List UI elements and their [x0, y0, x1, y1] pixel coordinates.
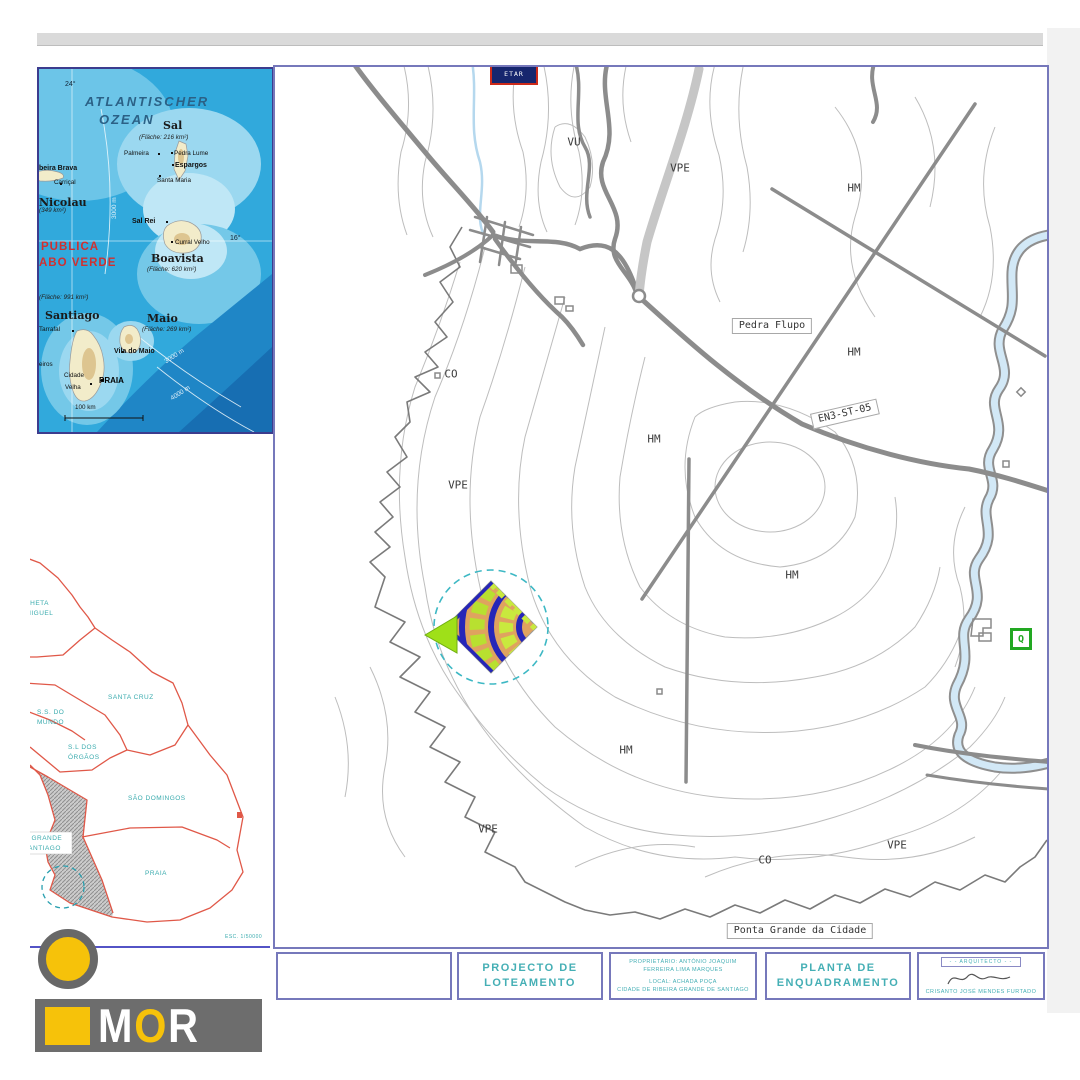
cv-label: Sal — [163, 120, 182, 131]
cv-label: ATLANTISCHER — [85, 95, 209, 108]
cv-label: Santa Maria — [157, 178, 191, 184]
cv-label: Tarrafal — [39, 327, 60, 333]
mun-label: CALHETA — [30, 601, 49, 608]
logo-letter: O — [134, 999, 168, 1052]
title-cell-empty — [276, 952, 452, 1000]
zone-label: HM — [847, 183, 860, 194]
cv-label: (Fläche: 216 km²) — [139, 135, 188, 141]
cv-label: (349 km²) — [39, 208, 66, 214]
mun-label: MUNDO — [37, 720, 64, 727]
logo-square-icon — [45, 1007, 90, 1045]
title-cell-project: PROJECTO DE LOTEAMENTO — [457, 952, 603, 1000]
cv-label: Vila do Maio — [114, 348, 155, 355]
mun-label: S.S. DO — [37, 710, 64, 717]
title-cell-drawing: PLANTA DE ENQUADRAMENTO — [765, 952, 911, 1000]
mun-label: DE SANTIAGO — [30, 846, 61, 853]
architect-name: CRISANTO JOSÉ MENDES FURTADO — [926, 989, 1037, 995]
cv-label: Boavista — [151, 253, 204, 264]
owner-line1: PROPRIETÁRIO: ANTÓNIO JOAQUIM — [617, 958, 749, 966]
logo-circle-icon — [38, 929, 98, 989]
zone-label: CO — [444, 369, 457, 380]
drawing-title-line2: ENQUADRAMENTO — [777, 976, 900, 991]
municipality-labels: CALHETAS. MIGUELSANTA CRUZS.S. DOMUNDOS.… — [30, 535, 270, 945]
mun-label: S. MIGUEL — [30, 611, 53, 618]
cv-label: 100 km — [75, 405, 96, 411]
cv-label: PUBLICA — [41, 242, 99, 254]
local-line2: CIDADE DE RIBEIRA GRANDE DE SANTIAGO — [617, 986, 749, 994]
zone-label: Pedra Flupo — [732, 318, 812, 334]
cv-label: 3000 m — [112, 197, 119, 219]
zone-label: VPE — [670, 163, 690, 174]
mun-label: PRAIA — [145, 871, 167, 878]
main-map-planta-enquadramento: ETAR Q VUVPEHMHMCOVPEHMHMHMVPECOVPEPedra… — [273, 65, 1049, 949]
mun-label: ÓRGÃOS — [68, 755, 100, 762]
cv-label: Pedra Lume — [174, 151, 208, 157]
inset-map-cabo-verde: 24°ATLANTISCHEROZEANSal(Fläche: 216 km²)… — [37, 67, 274, 434]
zone-label: HM — [619, 745, 632, 756]
zone-labels-layer: VUVPEHMHMCOVPEHMHMHMVPECOVPEPedra FlupoE… — [275, 67, 1047, 947]
signature — [944, 968, 1019, 988]
cv-label: beira Brava — [39, 165, 77, 172]
cv-label: Cidade — [64, 373, 84, 379]
cv-label: 3000 m — [164, 348, 186, 365]
logo-letter: M — [98, 999, 134, 1052]
cv-label: 24° — [65, 81, 76, 88]
project-title-line2: LOTEAMENTO — [482, 976, 577, 991]
inset-map-municipalities: CALHETAS. MIGUELSANTA CRUZS.S. DOMUNDOS.… — [30, 535, 270, 945]
right-margin-strip — [1047, 28, 1080, 1013]
zone-label: HM — [847, 347, 860, 358]
cv-label: (Fläche: 991 km²) — [39, 295, 88, 301]
mun-label: ESC. 1/50000 — [225, 935, 262, 940]
owner-line2: FERREIRA LIMA MARQUES — [617, 966, 749, 974]
cv-label: Maio — [147, 313, 178, 324]
zone-label: EN3-ST-05 — [810, 399, 880, 430]
cv-label: Carriçal — [54, 180, 76, 186]
cv-label: ABO VERDE — [39, 258, 116, 270]
logo-wordmark: MOR — [98, 1000, 200, 1051]
logo-letter: R — [168, 999, 200, 1052]
cv-label: 4000 m — [170, 385, 192, 402]
title-cell-owner: PROPRIETÁRIO: ANTÓNIO JOAQUIM FERREIRA L… — [609, 952, 757, 1000]
cv-label: OZEAN — [99, 113, 155, 126]
cv-label: Palmeira — [124, 151, 149, 157]
zone-label: CO — [758, 855, 771, 866]
cv-label: (Fläche: 620 km²) — [147, 267, 196, 273]
zone-label: HM — [647, 434, 660, 445]
cv-label: Curral Velho — [175, 240, 210, 246]
cabo-verde-labels: 24°ATLANTISCHEROZEANSal(Fläche: 216 km²)… — [39, 69, 272, 432]
mun-label: S.L DOS — [68, 745, 97, 752]
cv-label: Velha — [65, 385, 81, 391]
zone-label: VPE — [887, 840, 907, 851]
mun-label: SANTA CRUZ — [108, 695, 154, 702]
zone-label: VPE — [448, 480, 468, 491]
zone-label: HM — [785, 570, 798, 581]
zone-label: VU — [567, 137, 580, 148]
cv-label: Santiago — [45, 310, 99, 321]
cv-label: (Fläche: 269 km²) — [142, 327, 191, 333]
cv-label: PRAIA — [99, 377, 124, 385]
mun-label: SÃO DOMINGOS — [128, 796, 186, 803]
drawing-title-line1: PLANTA DE — [777, 961, 900, 976]
local-line1: LOCAL: ACHADA POÇA — [617, 978, 749, 986]
cv-label: Espargos — [175, 162, 207, 169]
architect-label: - - ARQUITECTO - - — [941, 957, 1022, 967]
cv-label: 16° — [230, 235, 241, 242]
zone-label: VPE — [478, 824, 498, 835]
top-gray-bar — [37, 33, 1043, 46]
cv-label: Sal Rei — [132, 218, 155, 225]
cv-label: eiros — [39, 362, 53, 368]
mun-label: RIBEIRA GRANDE — [30, 836, 62, 843]
zone-label: Ponta Grande da Cidade — [727, 923, 873, 939]
project-title-line1: PROJECTO DE — [482, 961, 577, 976]
drawing-sheet: 24°ATLANTISCHEROZEANSal(Fläche: 216 km²)… — [0, 0, 1080, 1080]
title-cell-architect: - - ARQUITECTO - - CRISANTO JOSÉ MENDES … — [917, 952, 1045, 1000]
